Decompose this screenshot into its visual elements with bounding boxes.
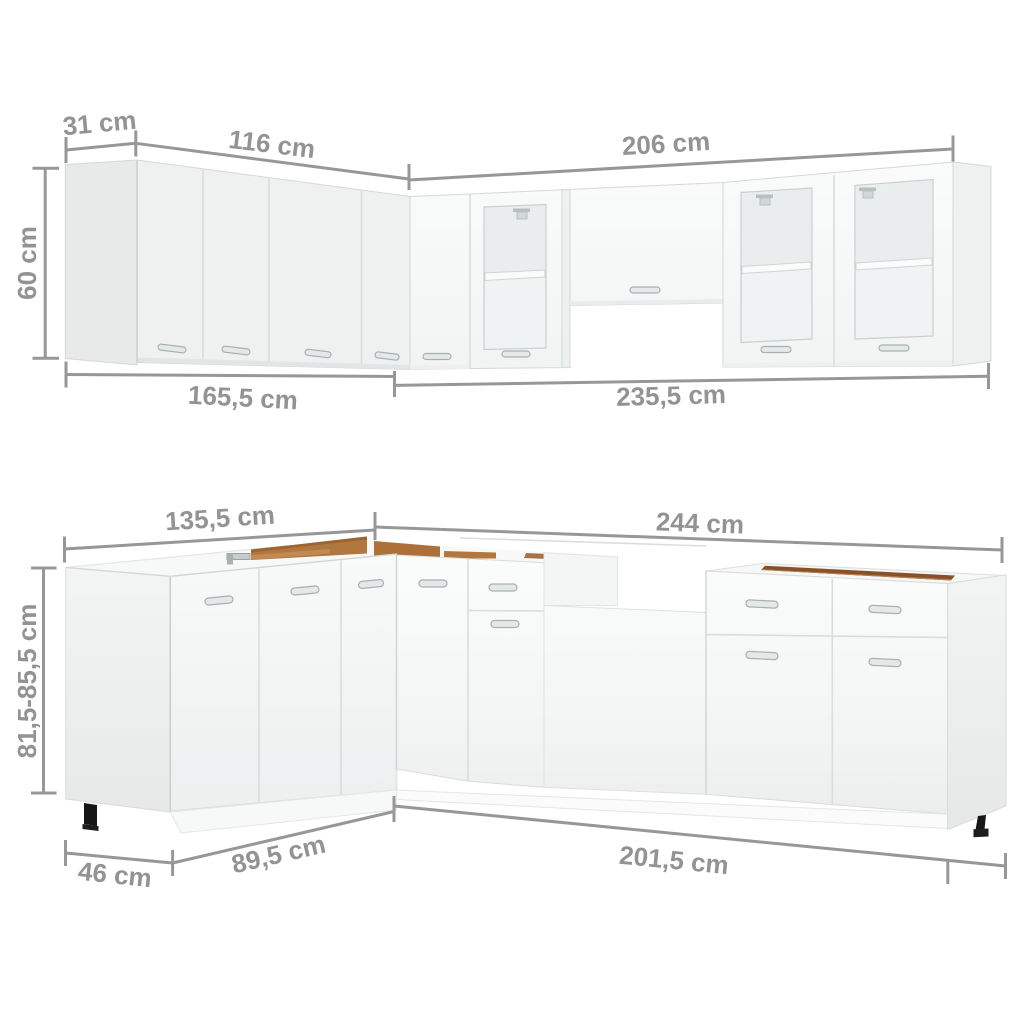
svg-text:165,5 cm: 165,5 cm bbox=[187, 380, 298, 416]
svg-text:206 cm: 206 cm bbox=[621, 126, 711, 161]
svg-text:244 cm: 244 cm bbox=[655, 506, 744, 539]
svg-text:81,5-85,5 cm: 81,5-85,5 cm bbox=[12, 604, 42, 759]
svg-text:235,5 cm: 235,5 cm bbox=[616, 379, 727, 412]
svg-text:60 cm: 60 cm bbox=[12, 226, 42, 300]
